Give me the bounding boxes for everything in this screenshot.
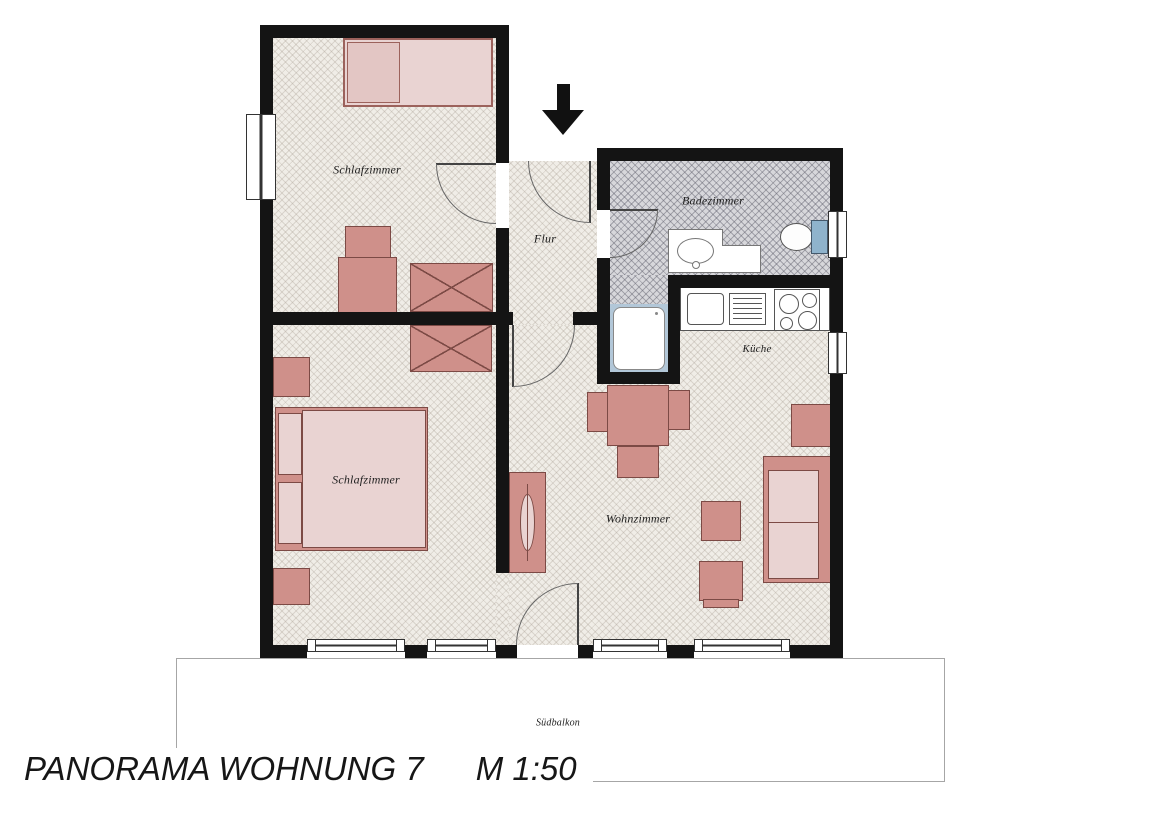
room-label-bedroom-top: Schlafzimmer (333, 163, 401, 178)
burner (802, 293, 817, 308)
wall (597, 148, 843, 161)
toilet-bowl (780, 223, 813, 251)
window (828, 332, 847, 374)
armchair (791, 404, 831, 447)
sink-drain (692, 261, 700, 269)
sofa-cushion (768, 470, 819, 523)
window (307, 639, 405, 652)
wall (405, 645, 427, 658)
floor-plan: Schlafzimmer Flur Badezimmer Küche Schla… (0, 0, 1152, 815)
wall (260, 645, 307, 658)
wall (668, 288, 680, 384)
room-label-kitchen: Küche (742, 343, 771, 355)
wall (496, 228, 509, 325)
wall (496, 25, 509, 163)
wardrobe (410, 263, 493, 312)
sofa-cushion (768, 522, 819, 579)
sideboard-decor-line (527, 484, 528, 561)
room-label-balcony: Südbalkon (536, 718, 580, 729)
wardrobe (410, 325, 492, 372)
side-table (699, 561, 743, 601)
wall (668, 275, 843, 288)
nightstand (273, 568, 310, 605)
room-label-hall: Flur (534, 232, 556, 247)
kitchen-sink (687, 293, 724, 325)
plan-scale: M 1:50 (476, 750, 577, 787)
burner (798, 311, 817, 330)
side-table-shelf (703, 599, 739, 608)
room-label-bathroom: Badezimmer (682, 194, 744, 209)
armchair-back (345, 226, 391, 260)
pillow (278, 413, 302, 475)
wall (830, 148, 843, 212)
dining-chair (668, 390, 690, 430)
pillow (278, 482, 302, 544)
burner (779, 294, 799, 314)
wall (578, 645, 593, 658)
window (694, 639, 790, 652)
nightstand (273, 357, 310, 397)
wall (667, 645, 694, 658)
wall (597, 258, 610, 372)
dining-chair (617, 446, 659, 478)
shower-tray (613, 307, 665, 370)
window (828, 211, 847, 258)
vanity-counter-ext (722, 245, 761, 273)
kitchen-drainer (729, 293, 766, 325)
floor-passage (496, 573, 509, 645)
side-table (701, 501, 741, 541)
window (427, 639, 496, 652)
room-label-living-room: Wohnzimmer (606, 512, 670, 527)
armchair-seat (338, 257, 397, 313)
plan-title-text: PANORAMA WOHNUNG 7 (24, 750, 424, 787)
burner (780, 317, 793, 330)
entrance-arrow-icon (557, 84, 570, 112)
wall (790, 645, 843, 658)
room-label-bedroom-bottom: Schlafzimmer (332, 473, 400, 488)
wall (260, 25, 509, 38)
window (593, 639, 667, 652)
plan-title: PANORAMA WOHNUNG 7M 1:50 (20, 748, 593, 796)
wall (597, 161, 610, 210)
window (246, 114, 276, 200)
shower-drain (655, 312, 658, 315)
wall (830, 373, 843, 658)
wall (496, 325, 509, 573)
dining-table (607, 385, 669, 446)
wall (496, 645, 517, 658)
wall (830, 257, 843, 333)
wall (260, 312, 513, 325)
single-bed-pillow (347, 42, 400, 103)
toilet-cistern (811, 220, 828, 254)
dining-chair (587, 392, 608, 432)
entrance-arrow-head-icon (542, 110, 584, 135)
